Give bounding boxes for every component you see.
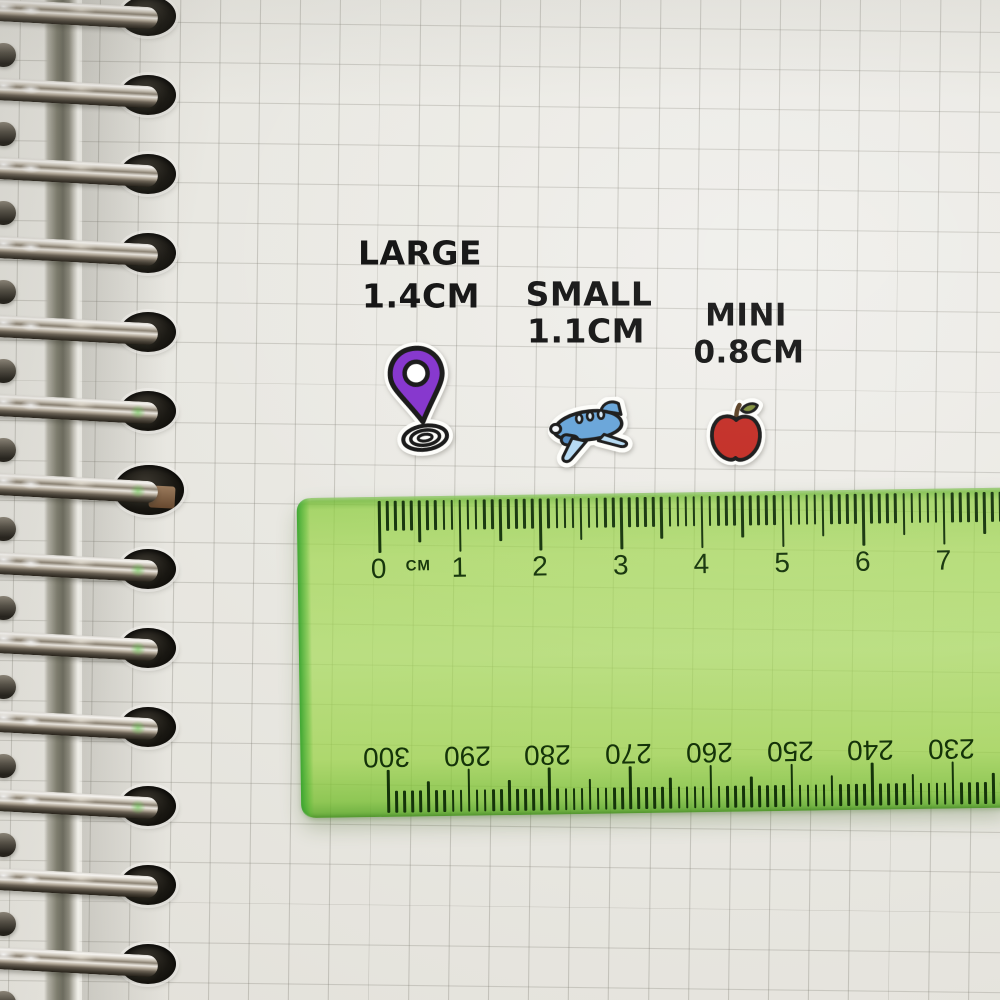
mm-tick [403, 791, 406, 813]
cm-tick [555, 498, 558, 528]
mm-tick [871, 763, 874, 806]
cm-tick [862, 494, 865, 546]
cm-number: 5 [774, 549, 790, 577]
mm-tick [831, 775, 834, 806]
cm-tick [870, 494, 873, 524]
mm-tick [903, 783, 906, 805]
mm-tick [774, 785, 777, 807]
cm-tick [821, 494, 824, 536]
cm-tick [854, 494, 857, 524]
cm-tick [531, 499, 534, 529]
mm-tick [573, 788, 576, 810]
cm-tick [571, 498, 574, 528]
cm-tick [450, 500, 453, 530]
cm-tick [725, 496, 728, 526]
mm-tick [669, 778, 672, 809]
mm-number-upside-down: 270 [605, 739, 652, 768]
mm-tick [951, 761, 954, 804]
mm-tick [807, 785, 810, 807]
mm-tick [556, 788, 559, 810]
cm-number: 1 [451, 554, 467, 582]
mm-tick [911, 774, 914, 805]
mm-tick [823, 784, 826, 806]
cm-tick [813, 494, 816, 524]
mm-tick [766, 785, 769, 807]
label-small-title: SMALL [526, 278, 653, 311]
mm-tick [581, 788, 584, 810]
cm-tick [878, 494, 881, 524]
cm-tick [741, 496, 744, 538]
cm-tick [902, 493, 905, 535]
cm-tick [466, 500, 469, 530]
mm-tick [847, 784, 850, 806]
mm-tick [484, 789, 487, 811]
mm-tick [992, 773, 995, 804]
cm-tick [918, 493, 921, 523]
cm-tick [773, 495, 776, 525]
cm-tick [975, 492, 978, 522]
mm-tick [508, 780, 511, 811]
mm-tick [597, 788, 600, 810]
cm-tick [491, 499, 494, 529]
cm-tick [378, 501, 381, 553]
mm-tick [976, 782, 979, 804]
cm-tick [394, 501, 397, 531]
label-small-size: 1.1CM [527, 315, 645, 348]
mm-tick [427, 781, 430, 812]
airplane-sticker [539, 395, 645, 472]
mm-tick [500, 789, 503, 811]
cm-tick [458, 500, 461, 552]
mm-tick [726, 786, 729, 808]
mm-tick [709, 765, 712, 808]
cm-tick [846, 494, 849, 524]
cm-tick [717, 496, 720, 526]
cm-tick [539, 499, 542, 551]
apple-icon [699, 392, 772, 470]
mm-tick [411, 790, 414, 812]
cm-tick [749, 495, 752, 525]
cm-tick [587, 498, 590, 528]
mm-tick [387, 770, 390, 813]
mm-tick [879, 784, 882, 806]
cm-tick [709, 496, 712, 526]
mm-tick [782, 785, 785, 807]
cm-tick [967, 492, 970, 522]
mm-tick [944, 783, 947, 805]
mm-tick [435, 790, 438, 812]
cm-tick [434, 500, 437, 530]
mm-tick [476, 790, 479, 812]
cm-tick [620, 497, 623, 549]
mm-number-upside-down: 300 [363, 743, 410, 772]
cm-tick [910, 493, 913, 523]
cm-tick [636, 497, 639, 527]
label-large-size: 1.4CM [362, 280, 480, 313]
cm-tick [499, 499, 502, 541]
cm-tick [386, 501, 389, 531]
mm-tick [895, 783, 898, 805]
cm-tick [733, 496, 736, 526]
mm-tick [839, 784, 842, 806]
mm-tick [621, 787, 624, 809]
cm-tick [652, 497, 655, 527]
notebook-binding-strip [44, 0, 84, 1000]
cm-tick [563, 498, 566, 528]
mm-number-upside-down: 250 [766, 737, 813, 766]
cm-number: 2 [532, 552, 548, 580]
cm-tick [830, 494, 833, 524]
cm-tick [523, 499, 526, 529]
mm-tick [613, 787, 616, 809]
mm-tick [548, 767, 551, 810]
mm-number-upside-down: 290 [444, 741, 491, 770]
cm-tick [838, 494, 841, 524]
cm-tick [926, 493, 929, 523]
cm-tick [943, 493, 946, 545]
mm-tick [524, 789, 527, 811]
mm-number-upside-down: 280 [524, 740, 571, 769]
mm-tick [718, 786, 721, 808]
cm-tick [660, 497, 663, 539]
mm-tick [790, 764, 793, 807]
mm-tick [798, 785, 801, 807]
cm-number: 7 [936, 546, 952, 574]
cm-tick [483, 499, 486, 529]
cm-tick [612, 497, 615, 527]
cm-tick [991, 492, 994, 522]
mm-tick [968, 782, 971, 804]
mm-tick [605, 788, 608, 810]
mm-number-upside-down: 230 [928, 734, 975, 763]
cm-tick [596, 498, 599, 528]
apple-sticker [699, 392, 772, 470]
cm-number: 6 [855, 548, 871, 576]
mm-tick [984, 782, 987, 804]
cm-tick [628, 497, 631, 527]
label-large-title: LARGE [358, 237, 482, 270]
cm-tick [951, 492, 954, 522]
airplane-icon [539, 395, 645, 472]
mm-tick [936, 783, 939, 805]
mm-tick [653, 787, 656, 809]
mm-tick [742, 786, 745, 808]
cm-tick [781, 495, 784, 547]
cm-tick [474, 499, 477, 529]
mm-tick [532, 789, 535, 811]
mm-tick [863, 784, 866, 806]
mm-tick [694, 786, 697, 808]
mm-tick [637, 787, 640, 809]
cm-tick [668, 497, 671, 527]
cm-tick [547, 498, 550, 528]
cm-tick [442, 500, 445, 530]
mm-tick [815, 784, 818, 806]
mm-tick [750, 776, 753, 807]
mm-tick [686, 786, 689, 808]
cm-unit-label: CM [406, 558, 432, 573]
mm-tick [758, 785, 761, 807]
mm-tick [702, 786, 705, 808]
cm-tick [410, 500, 413, 530]
cm-tick [757, 495, 760, 525]
cm-tick [644, 497, 647, 527]
cm-tick [789, 495, 792, 525]
label-mini-title: MINI [705, 301, 787, 332]
cm-tick [604, 498, 607, 528]
mm-tick [492, 789, 495, 811]
cm-tick [894, 493, 897, 523]
mm-tick [960, 782, 963, 804]
label-mini-size: 0.8CM [693, 338, 804, 369]
cm-tick [579, 498, 582, 540]
mm-tick [645, 787, 648, 809]
cm-tick [805, 495, 808, 525]
mm-tick [443, 790, 446, 812]
mm-tick [677, 787, 680, 809]
cm-tick [700, 496, 703, 548]
mm-tick [855, 784, 858, 806]
mm-tick [661, 787, 664, 809]
mm-tick [460, 790, 463, 812]
cm-tick [886, 493, 889, 523]
cm-tick [426, 500, 429, 530]
cm-tick [765, 495, 768, 525]
mm-tick [516, 789, 519, 811]
cm-tick [418, 500, 421, 542]
cm-number: 3 [613, 551, 629, 579]
notebook-photo: LARGE 1.4CM SMALL 1.1CM MINI 0.8CM [0, 0, 1000, 1000]
mm-number-upside-down: 260 [686, 738, 733, 767]
cm-tick [684, 496, 687, 526]
ruler: 01234567CM 300290280270260250240230 [297, 488, 1000, 818]
cm-tick [507, 499, 510, 529]
mm-tick [395, 791, 398, 813]
mm-tick [419, 790, 422, 812]
mm-number-upside-down: 240 [847, 735, 894, 764]
mm-tick [564, 788, 567, 810]
cm-number: 0 [371, 555, 387, 583]
cm-tick [676, 496, 679, 526]
cm-tick [959, 492, 962, 522]
mm-tick [540, 789, 543, 811]
mm-tick [928, 783, 931, 805]
mm-tick [887, 783, 890, 805]
cm-number: 4 [693, 550, 709, 578]
mm-tick [467, 769, 470, 812]
cm-tick [934, 493, 937, 523]
mm-tick [734, 786, 737, 808]
mm-tick [629, 766, 632, 809]
cm-tick [692, 496, 695, 526]
cm-tick [797, 495, 800, 525]
cm-tick [983, 492, 986, 534]
mm-tick [452, 790, 455, 812]
mm-tick [920, 783, 923, 805]
mm-tick [589, 779, 592, 810]
cm-tick [515, 499, 518, 529]
cm-tick [402, 501, 405, 531]
